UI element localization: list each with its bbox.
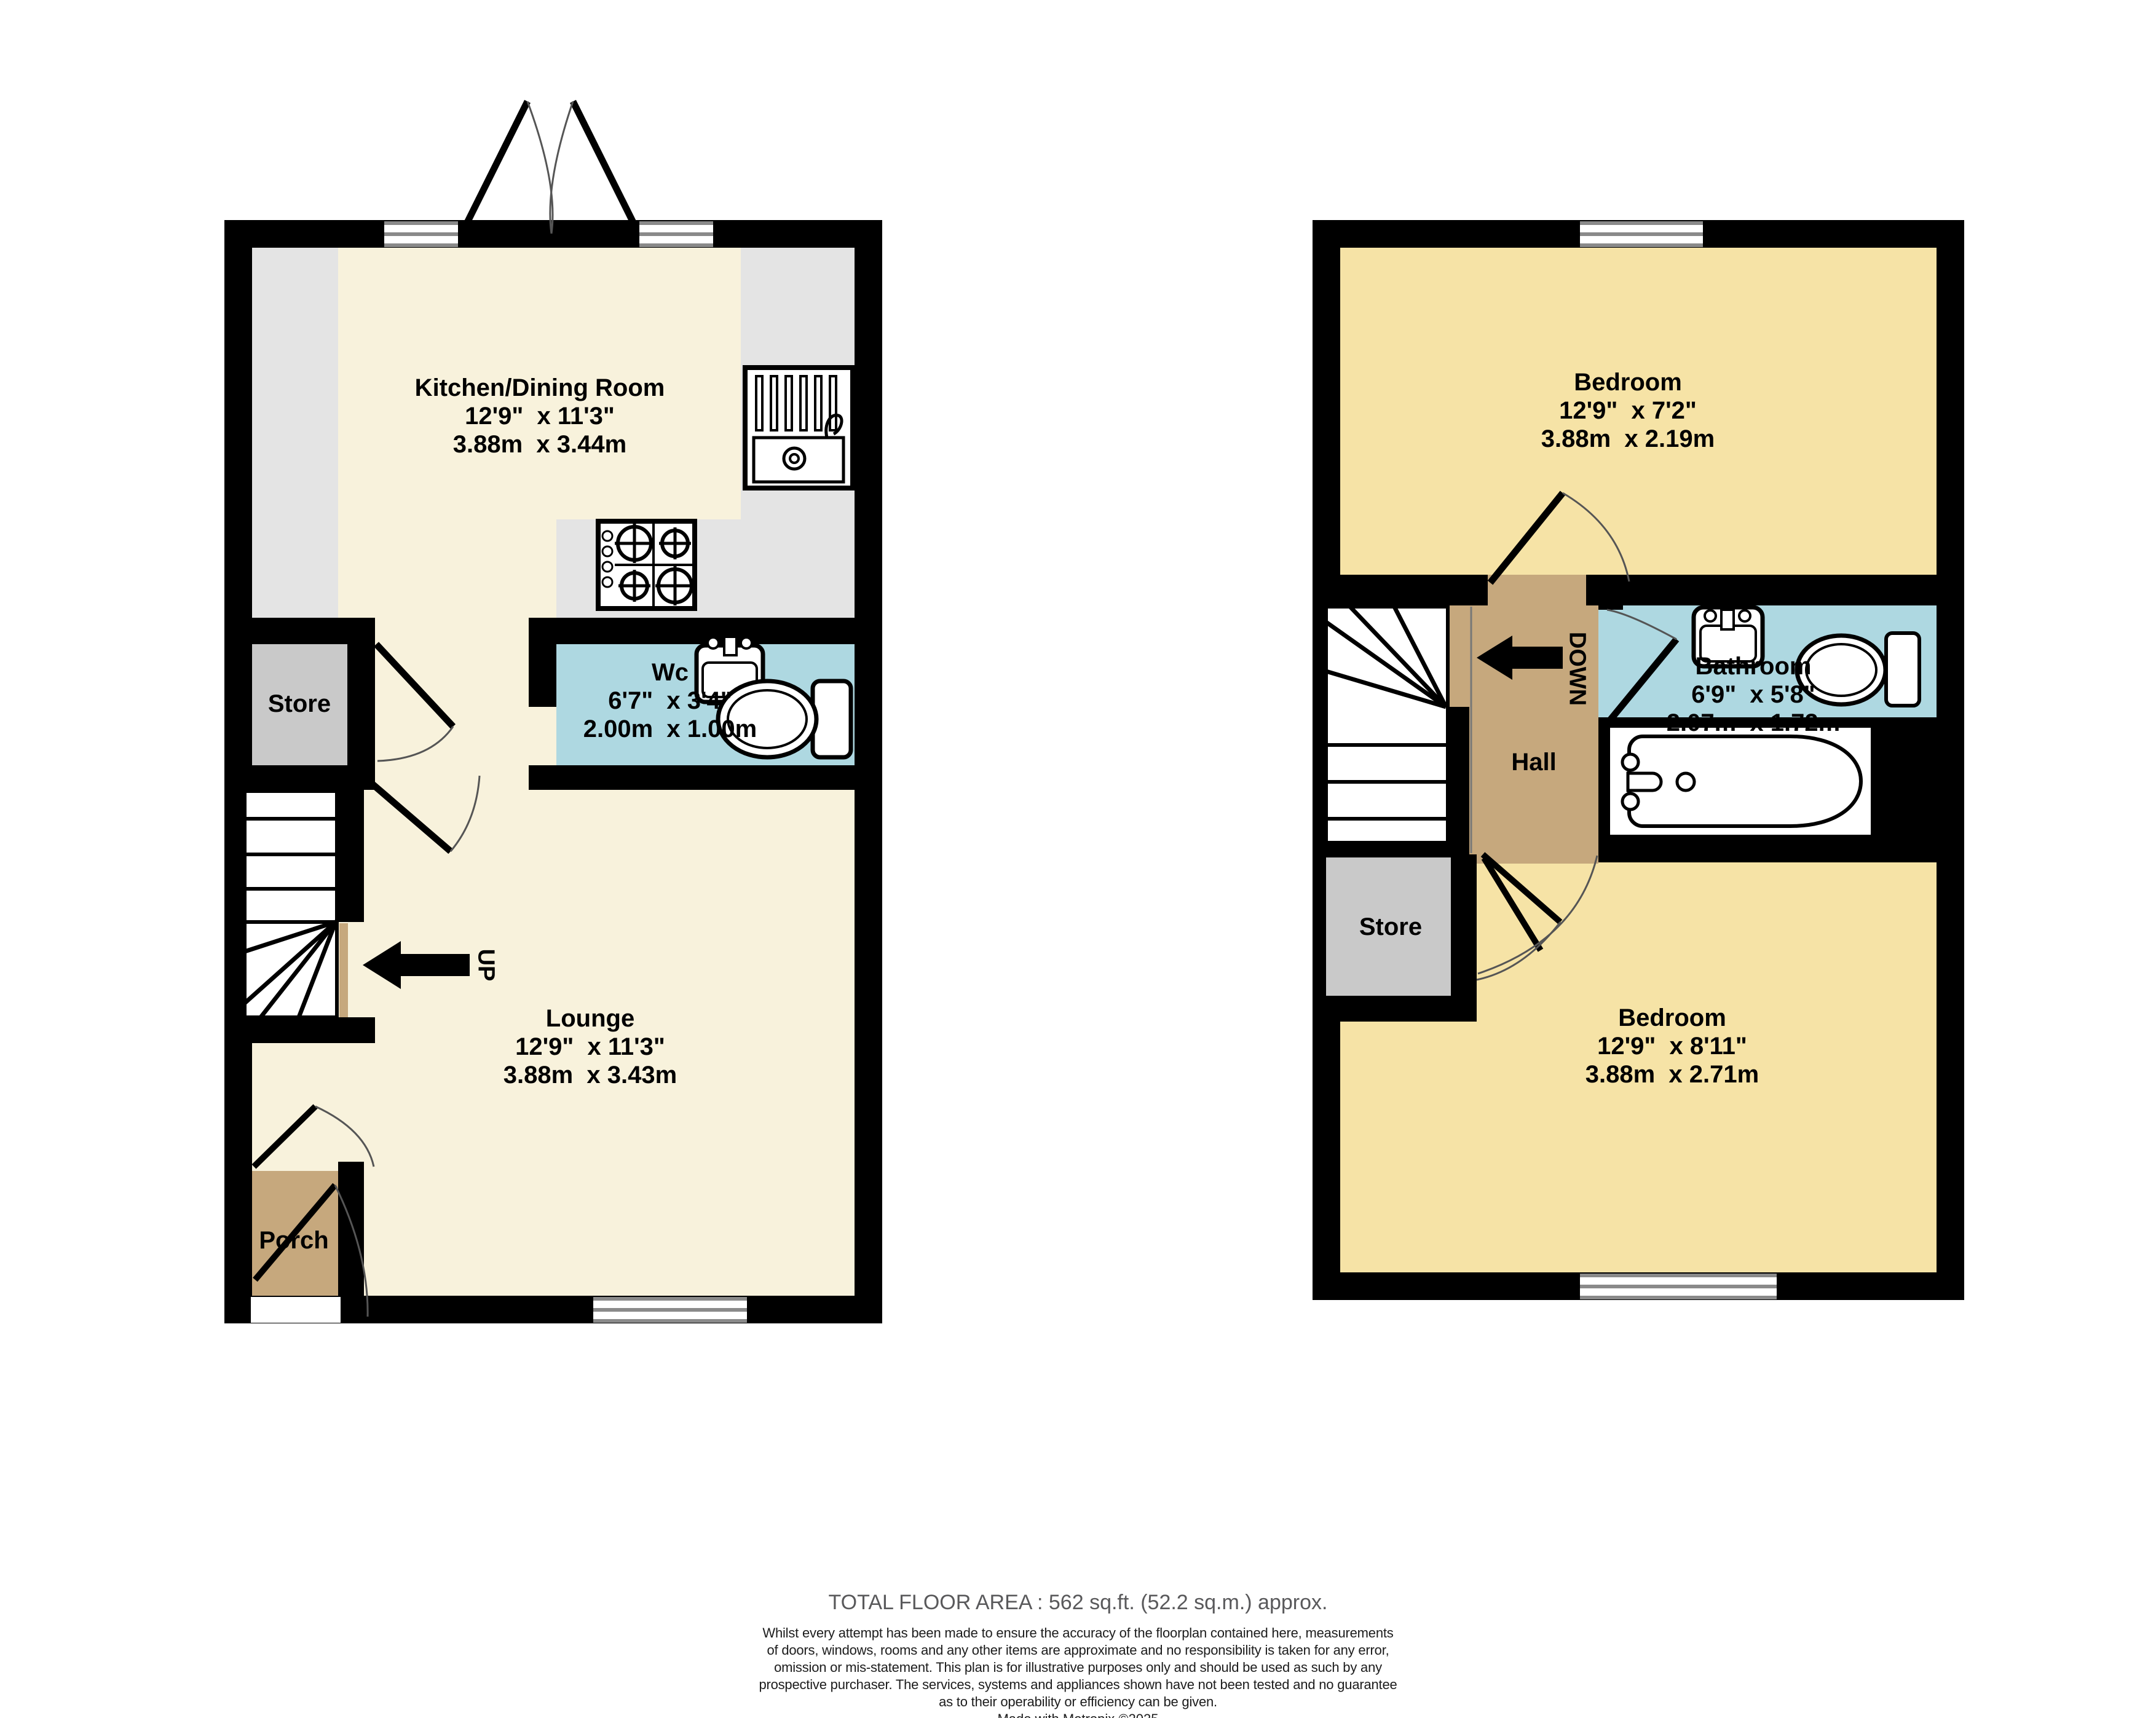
room-dims-metric: 2.07m x 1.72m: [1667, 709, 1840, 737]
stair-edge-strip: [339, 923, 348, 1017]
porch-door-opening: [251, 1297, 341, 1323]
disclaimer-line: Whilst every attempt has been made to en…: [556, 1625, 1601, 1642]
room-name: Bedroom: [1541, 368, 1715, 396]
window-bedroom1: [1580, 221, 1703, 247]
bathtub-icon: [1609, 727, 1872, 836]
room-name: Hall: [1511, 748, 1556, 776]
wall-store-top: [224, 618, 375, 644]
credit-text: Made with Metropix ©2025: [556, 1711, 1601, 1718]
wall-store2-bottom: [1313, 996, 1477, 1022]
window-kitchen-left: [384, 221, 458, 247]
wc-label: Wc 6'7" x 3'4" 2.00m x 1.00m: [583, 658, 757, 743]
wall-store2-top: [1325, 841, 1469, 857]
room-dims-imperial: 6'9" x 5'8": [1667, 680, 1840, 709]
disclaimer-line: omission or mis-statement. This plan is …: [556, 1659, 1601, 1676]
floorplan-drawing: [0, 0, 2156, 1718]
wall-porch-right: [338, 1162, 364, 1296]
up-label: UP: [473, 949, 499, 982]
bedroom1-label: Bedroom 12'9" x 7'2" 3.88m x 2.19m: [1541, 368, 1715, 453]
room-dims-imperial: 12'9" x 8'11": [1585, 1032, 1759, 1060]
room-name: Bedroom: [1585, 1004, 1759, 1032]
porch-label: Porch: [259, 1226, 328, 1255]
wall-bathroom-left-stub: [1598, 575, 1623, 610]
wall-stairs-right: [337, 790, 364, 922]
room-name: Wc: [583, 658, 757, 687]
room-name: Kitchen/Dining Room: [415, 374, 665, 402]
room-name: Store: [268, 690, 331, 718]
room-dims-metric: 3.88m x 2.71m: [1585, 1060, 1759, 1089]
room-name: Bathroom: [1667, 652, 1840, 680]
store2-label: Store: [1359, 913, 1422, 941]
wall-stairs-bottom: [224, 1017, 375, 1043]
wall-bedroom1-bottom-right: [1586, 575, 1964, 605]
room-dims-metric: 3.88m x 3.43m: [503, 1061, 677, 1089]
disclaimer-line: prospective purchaser. The services, sys…: [556, 1676, 1601, 1693]
room-name: Store: [1359, 913, 1422, 941]
room-name: Porch: [259, 1226, 328, 1255]
room-dims-imperial: 12'9" x 7'2": [1541, 396, 1715, 425]
bedroom2-label: Bedroom 12'9" x 8'11" 3.88m x 2.71m: [1585, 1004, 1759, 1089]
staircase-ground: [245, 791, 348, 1017]
hall-door-opening: [1488, 575, 1586, 605]
room-dims-imperial: 12'9" x 11'3": [415, 402, 665, 430]
disclaimer-line: of doors, windows, rooms and any other i…: [556, 1642, 1601, 1659]
room-dims-imperial: 12'9" x 11'3": [503, 1033, 677, 1061]
lounge-label: Lounge 12'9" x 11'3" 3.88m x 3.43m: [503, 1004, 677, 1089]
hall-label: Hall: [1511, 748, 1556, 776]
room-dims-metric: 2.00m x 1.00m: [583, 715, 757, 743]
staircase-first: [1326, 607, 1471, 853]
room-dims-imperial: 6'7" x 3'4": [583, 687, 757, 715]
wall-wc-bottom: [529, 765, 882, 790]
bathroom-label: Bathroom 6'9" x 5'8" 2.07m x 1.72m: [1667, 652, 1840, 737]
kitchen-counter-left: [252, 248, 338, 618]
floorplan-page: Kitchen/Dining Room 12'9" x 11'3" 3.88m …: [0, 0, 2156, 1718]
french-doors-icon: [461, 101, 639, 235]
room-name: Lounge: [503, 1004, 677, 1033]
kitchen-sink-icon: [745, 368, 853, 488]
wall-store-bottom: [224, 765, 375, 790]
stove-icon: [598, 521, 695, 609]
window-bedroom2: [1580, 1274, 1777, 1299]
room-dims-metric: 3.88m x 2.19m: [1541, 425, 1715, 453]
window-kitchen-right: [639, 221, 713, 247]
wall-wc-left: [529, 644, 556, 707]
wall-store-right: [347, 644, 375, 765]
wall-bedroom1-bottom-left: [1313, 575, 1488, 605]
total-floor-area-text: TOTAL FLOOR AREA : 562 sq.ft. (52.2 sq.m…: [556, 1591, 1601, 1615]
footer: TOTAL FLOOR AREA : 562 sq.ft. (52.2 sq.m…: [556, 1591, 1601, 1718]
window-lounge: [593, 1297, 747, 1323]
wall-wc-top: [529, 618, 882, 644]
disclaimer-text: Whilst every attempt has been made to en…: [556, 1625, 1601, 1711]
disclaimer-line: as to their operability or efficiency ca…: [556, 1693, 1601, 1711]
store-label: Store: [268, 690, 331, 718]
kitchen-label: Kitchen/Dining Room 12'9" x 11'3" 3.88m …: [415, 374, 665, 459]
down-label: DOWN: [1564, 632, 1590, 706]
room-dims-metric: 3.88m x 3.44m: [415, 430, 665, 459]
